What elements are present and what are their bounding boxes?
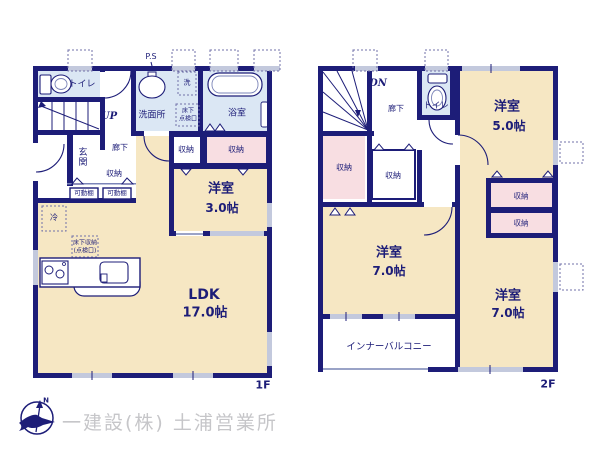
floorplan-2f xyxy=(318,50,583,374)
floor1-label: 1F xyxy=(255,380,270,391)
ldk-size: 17.0帖 xyxy=(182,307,227,320)
closet-stack-top-label: 収納 xyxy=(514,192,529,200)
fridge-label: 冷 xyxy=(50,214,58,222)
balcony-label: インナーバルコニー xyxy=(346,342,431,352)
closet-mid-label: 収納 xyxy=(385,172,401,180)
stairs-dn-label: DN xyxy=(369,79,387,89)
washroom-label: 洗面所 xyxy=(138,112,165,121)
room-west-name: 洋室 xyxy=(208,183,234,196)
underfloor-access-line2: 点検口 xyxy=(179,115,197,123)
closet-a-label: 収納 xyxy=(178,146,194,154)
compass-icon xyxy=(19,400,55,434)
kitchen-sink-icon xyxy=(100,262,128,283)
room-west-size: 3.0帖 xyxy=(205,202,238,214)
floor-storage-line1: 床下収納 xyxy=(73,240,97,248)
closet-left-label: 収納 xyxy=(336,164,352,172)
closet-stack-bottom-label: 収納 xyxy=(514,219,529,227)
floorplan-drawing xyxy=(0,0,600,450)
stove-icon xyxy=(42,261,68,284)
underfloor-access-line1: 床下 xyxy=(179,108,197,116)
toilet-1f-label: トイレ xyxy=(68,81,95,90)
room-ne-name: 洋室 xyxy=(494,101,520,114)
movable-shelf-left-label: 可動棚 xyxy=(74,190,94,197)
room-se-name: 洋室 xyxy=(495,290,521,303)
room-sw-floor xyxy=(323,207,455,314)
room-sw-name: 洋室 xyxy=(376,247,402,260)
stairs-up-label: UP xyxy=(101,112,117,122)
company-name: 一建設(株) 土浦営業所 xyxy=(62,408,278,435)
room-sw-size: 7.0帖 xyxy=(372,265,405,277)
sliding-door-1f xyxy=(176,233,203,235)
compass-north-label: N xyxy=(43,398,49,405)
toilet-icon-1f xyxy=(40,75,71,94)
hallway-1f-label: 廊下 xyxy=(112,144,128,152)
underfloor-access-label: 床下 点検口 xyxy=(179,108,197,123)
ps-label: P.S xyxy=(145,53,156,61)
entrance-label: 玄関 xyxy=(77,147,86,167)
movable-shelf-right-label: 可動棚 xyxy=(107,190,127,197)
room3-floor xyxy=(174,168,267,231)
ldk-name: LDK xyxy=(188,288,219,302)
floor-storage-line2: (点検口) xyxy=(73,247,97,255)
floor-storage-label: 床下収納 (点検口) xyxy=(73,240,97,255)
hallway-2f-label: 廊下 xyxy=(388,105,404,113)
room-se-size: 7.0帖 xyxy=(491,307,524,319)
laundry-label: 洗 xyxy=(184,80,191,87)
room-ne-size: 5.0帖 xyxy=(492,120,525,132)
bath-label: 浴室 xyxy=(228,110,246,119)
floor2-label: 2F xyxy=(540,379,555,390)
hall-closet-label: 収納 xyxy=(106,170,122,178)
toilet-2f-label: トイレ xyxy=(423,102,449,111)
floorplan-1f xyxy=(33,50,280,380)
closet-b-label: 収納 xyxy=(228,146,244,154)
floorplan-page: P.S トイレ UP 洗面所 洗 床下 点検口 浴室 玄関 廊下 収納 可動棚 … xyxy=(0,0,600,450)
balcony-edge xyxy=(323,368,428,370)
